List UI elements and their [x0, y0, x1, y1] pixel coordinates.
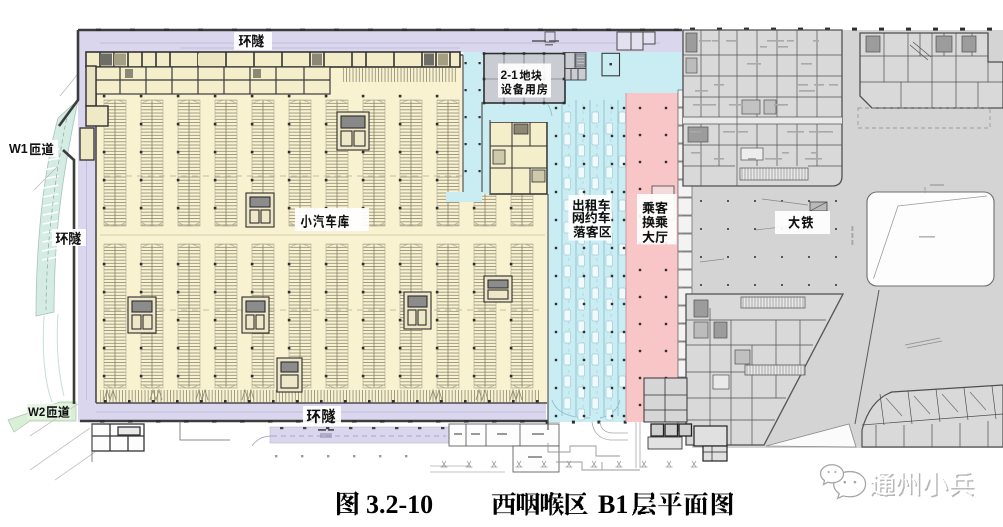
svg-text:B1: B1 — [598, 490, 628, 519]
svg-text:W2: W2 — [28, 407, 45, 419]
svg-text:3.2-10: 3.2-10 — [366, 490, 433, 519]
svg-text:W1: W1 — [9, 142, 28, 156]
svg-text:2-1: 2-1 — [501, 68, 519, 82]
